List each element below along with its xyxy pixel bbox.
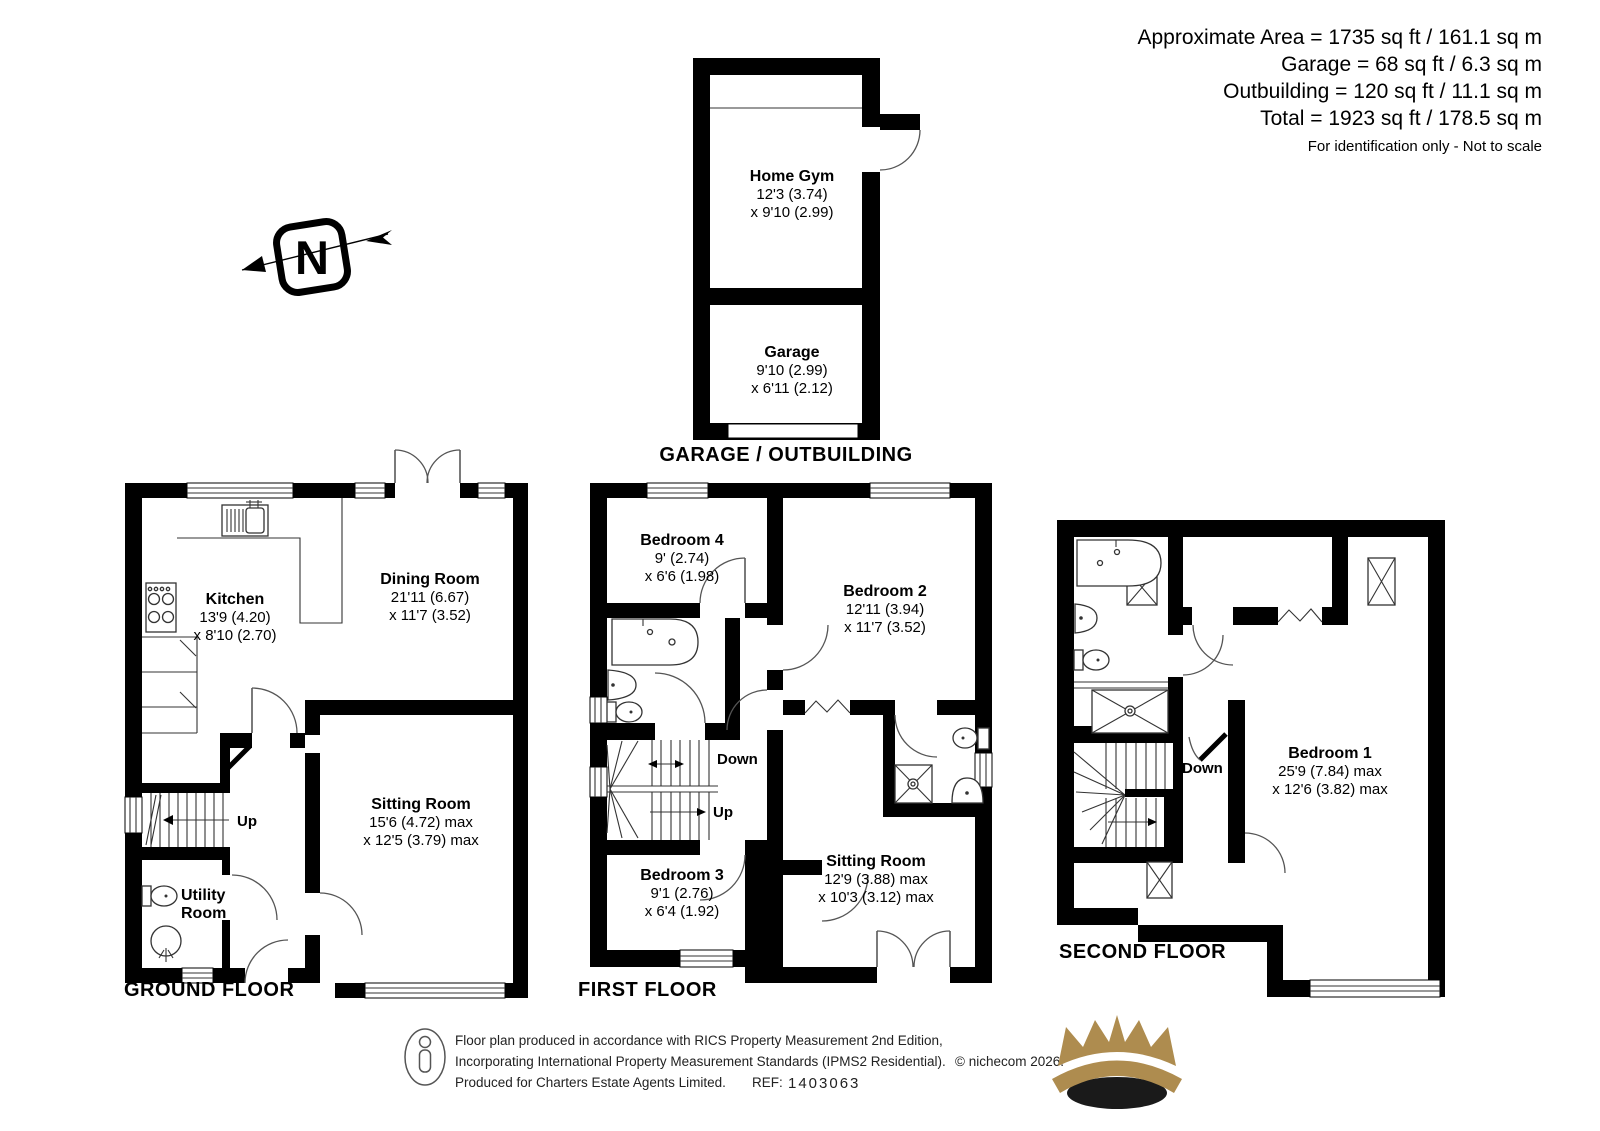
home-gym-label: Home Gym [750,168,834,185]
stat-disclaimer: For identification only - Not to scale [1308,138,1542,155]
toilet-icon [142,886,177,906]
bedroom-2-dim1: 12'11 (3.94) [846,601,924,618]
landing [740,618,767,740]
bedroom-3-dim2: x 6'4 (1.92) [645,903,720,920]
utility-room-label-2: Room [181,905,226,922]
kitchen-sink-icon [222,500,268,536]
room-hall [230,748,305,968]
door-opening [1192,607,1233,625]
landing-sf [1183,625,1228,863]
footer-line-2: Incorporating International Property Mea… [455,1054,946,1069]
dining-room-dim2: x 11'7 (3.52) [389,607,471,624]
bathtub-icon [612,619,698,665]
door-opening [305,735,320,753]
bedroom-2-dim2: x 11'7 (3.52) [844,619,926,636]
bedroom-2-label: Bedroom 2 [843,583,927,600]
door-opening [862,127,880,172]
floorplan-svg: Approximate Area = 1735 sq ft / 161.1 sq… [0,0,1600,1131]
home-gym-dim2: x 9'10 (2.99) [751,204,834,221]
skylight-icon [1368,558,1395,605]
garage-label: Garage [764,344,819,361]
toilet-icon [1074,650,1109,670]
shower-icon [1092,690,1168,733]
closet [1183,537,1332,607]
outbuilding-title: GARAGE / OUTBUILDING [659,444,912,466]
second-floor-title: SECOND FLOOR [1059,941,1226,963]
ground-floor-title: GROUND FLOOR [124,979,294,1001]
footer-line-1: Floor plan produced in accordance with R… [455,1033,943,1048]
dining-room-label: Dining Room [380,571,480,588]
kitchen-dim2: x 8'10 (2.70) [194,627,277,644]
bedroom-3-label: Bedroom 3 [640,867,724,884]
kitchen-dim1: 13'9 (4.20) [199,609,270,626]
dining-room-dim1: 21'11 (6.67) [391,589,469,606]
bedroom-4-dim2: x 6'6 (1.98) [645,568,720,585]
door-opening [252,733,290,748]
door-opening [700,603,745,618]
garage-dim1: 9'10 (2.99) [756,362,827,379]
door-opening [655,723,705,740]
door-opening [895,700,937,715]
second-floor-windows [1310,980,1440,997]
bedroom-1-label: Bedroom 1 [1288,745,1372,762]
stat-garage: Garage = 68 sq ft / 6.3 sq m [1281,53,1542,76]
first-floor-title: FIRST FLOOR [578,979,717,1001]
bedroom-1-dim2: x 12'6 (3.82) max [1272,781,1388,798]
wardrobe-opening [805,700,850,715]
toilet-icon [607,702,642,722]
garage-dim2: x 6'11 (2.12) [751,380,833,397]
door-opening [1168,635,1183,677]
bathtub-icon [1077,540,1161,586]
bedroom-3-dim1: 9'1 (2.76) [651,885,714,902]
footer-line-3: Produced for Charters Estate Agents Limi… [455,1075,726,1090]
hob-icon [146,583,176,632]
kitchen-label: Kitchen [206,591,265,608]
first-floor-plan: Bedroom 4 9' (2.74) x 6'6 (1.98) Bedroom… [578,483,992,1001]
footer-ref-label: REF: [752,1075,783,1090]
sitting-room-ff-dim1: 12'9 (3.88) max [824,871,928,888]
home-gym-dim1: 12'3 (3.74) [756,186,827,203]
footer-ref-number: 1403063 [788,1075,860,1092]
ground-floor-plan: Kitchen 13'9 (4.20) x 8'10 (2.70) Dining… [124,450,528,1001]
sitting-room-gf-label: Sitting Room [371,796,471,813]
floor-plan-page: Approximate Area = 1735 sq ft / 161.1 sq… [0,0,1600,1131]
wardrobe-opening [1278,607,1322,625]
bedroom-1-dim1: 25'9 (7.84) max [1278,763,1382,780]
door-opening [700,840,745,855]
shower-icon [895,765,932,803]
up-label-gf: Up [237,813,257,830]
inner-hall [783,715,883,860]
sitting-room-gf-dim2: x 12'5 (3.79) max [363,832,479,849]
room-sitting-gf [320,715,513,983]
garage-door-icon [728,424,858,438]
skylight-icon [1147,862,1172,898]
sitting-room-ff-dim2: x 10'3 (3.12) max [818,889,934,906]
up-label-ff: Up [713,804,733,821]
footer-copyright: © nichecom 2026. [955,1054,1064,1069]
bedroom-4-label: Bedroom 4 [640,532,724,549]
sitting-room-gf-dim1: 15'6 (4.72) max [369,814,473,831]
north-letter: N [295,231,329,284]
down-label-sf: Down [1182,760,1223,777]
bedroom-4-dim1: 9' (2.74) [655,550,710,567]
sitting-room-ff-label: Sitting Room [826,853,926,870]
stat-outbuilding: Outbuilding = 120 sq ft / 11.1 sq m [1223,80,1542,103]
door-opening [305,893,320,935]
toilet-icon [953,728,989,749]
utility-room-label-1: Utility [181,887,226,904]
door-opening [767,690,783,730]
door-opening [1228,625,1245,700]
down-label-ff: Down [717,751,758,768]
stat-total: Total = 1923 sq ft / 178.5 sq m [1260,107,1542,130]
door-opening [767,625,783,670]
stat-approximate-area: Approximate Area = 1735 sq ft / 161.1 sq… [1138,26,1543,49]
